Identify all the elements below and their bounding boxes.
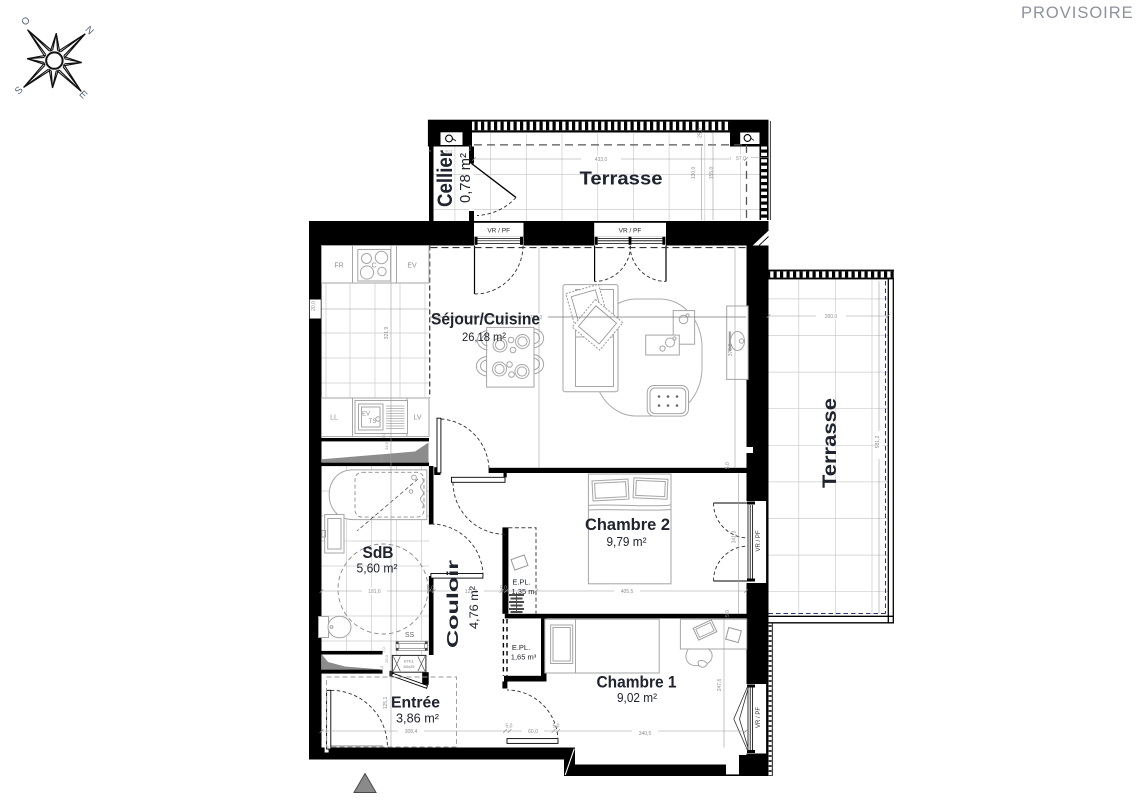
svg-text:3,86 m²: 3,86 m² bbox=[396, 712, 439, 726]
svg-text:25,0: 25,0 bbox=[698, 128, 704, 138]
svg-text:378,8: 378,8 bbox=[728, 344, 734, 357]
svg-text:57,0: 57,0 bbox=[736, 156, 746, 162]
svg-text:VR / PF: VR / PF bbox=[756, 707, 762, 728]
svg-text:Séjour/Cuisine: Séjour/Cuisine bbox=[431, 310, 540, 329]
svg-text:60x25: 60x25 bbox=[404, 664, 416, 669]
svg-text:200,0: 200,0 bbox=[825, 314, 838, 320]
svg-text:1,35 m: 1,35 m bbox=[512, 587, 535, 596]
svg-text:26,18 m²: 26,18 m² bbox=[462, 330, 506, 344]
svg-text:VR / PF: VR / PF bbox=[487, 228, 510, 235]
svg-text:7,0: 7,0 bbox=[379, 665, 384, 671]
svg-text:5,0: 5,0 bbox=[725, 462, 731, 469]
svg-text:5,0: 5,0 bbox=[725, 610, 731, 617]
svg-text:SdB: SdB bbox=[363, 543, 394, 562]
svg-text:7,0: 7,0 bbox=[379, 455, 384, 461]
svg-text:Chambre 1: Chambre 1 bbox=[597, 673, 677, 692]
svg-text:ETEL: ETEL bbox=[404, 659, 415, 664]
svg-text:181,6: 181,6 bbox=[368, 589, 381, 595]
svg-text:SS: SS bbox=[405, 632, 415, 639]
svg-text:VR / PF: VR / PF bbox=[756, 530, 762, 551]
svg-text:6,0: 6,0 bbox=[467, 144, 472, 150]
svg-text:0,78 m²: 0,78 m² bbox=[458, 153, 474, 203]
svg-text:EV: EV bbox=[362, 412, 370, 418]
svg-text:VR / PF: VR / PF bbox=[619, 228, 642, 235]
svg-text:Terrasse: Terrasse bbox=[820, 398, 841, 488]
svg-text:125,1: 125,1 bbox=[383, 697, 389, 710]
svg-text:Couloir: Couloir bbox=[445, 560, 462, 648]
svg-text:PROVISOIRE: PROVISOIRE bbox=[1021, 4, 1134, 22]
svg-text:TS: TS bbox=[369, 419, 377, 425]
svg-text:433,0: 433,0 bbox=[595, 157, 608, 163]
svg-text:Terrasse: Terrasse bbox=[580, 169, 663, 189]
svg-text:LL: LL bbox=[330, 415, 338, 422]
svg-text:25,0: 25,0 bbox=[384, 654, 389, 663]
svg-text:5,0: 5,0 bbox=[506, 724, 513, 730]
svg-text:581,2: 581,2 bbox=[875, 436, 881, 449]
svg-text:60,0: 60,0 bbox=[528, 729, 538, 735]
svg-text:9,79 m²: 9,79 m² bbox=[607, 534, 648, 549]
svg-text:1,65 m³: 1,65 m³ bbox=[511, 653, 537, 662]
svg-text:FR: FR bbox=[334, 263, 343, 270]
svg-text:LV: LV bbox=[413, 415, 421, 422]
svg-text:E.PL.: E.PL. bbox=[512, 643, 530, 652]
svg-text:340,5: 340,5 bbox=[639, 731, 652, 737]
svg-text:321,9: 321,9 bbox=[384, 327, 390, 340]
svg-text:Chambre 2: Chambre 2 bbox=[585, 515, 670, 534]
svg-text:155,0: 155,0 bbox=[709, 167, 715, 180]
svg-text:7,0: 7,0 bbox=[381, 646, 386, 652]
svg-text:5,60 m²: 5,60 m² bbox=[357, 562, 398, 576]
svg-text:Entrée: Entrée bbox=[391, 695, 440, 712]
svg-text:C: C bbox=[371, 263, 376, 270]
svg-text:308,4: 308,4 bbox=[405, 729, 418, 735]
svg-text:9,02 m²: 9,02 m² bbox=[617, 690, 658, 705]
svg-text:5,0: 5,0 bbox=[427, 586, 434, 592]
svg-text:20,0: 20,0 bbox=[311, 301, 317, 311]
svg-text:130,0: 130,0 bbox=[691, 167, 697, 180]
svg-text:5,0: 5,0 bbox=[553, 724, 560, 730]
svg-text:7,0: 7,0 bbox=[381, 432, 386, 438]
svg-text:405,5: 405,5 bbox=[621, 589, 634, 595]
svg-text:4,76 m²: 4,76 m² bbox=[467, 586, 481, 629]
svg-text:34,6: 34,6 bbox=[384, 441, 389, 450]
svg-text:EV: EV bbox=[407, 263, 417, 270]
svg-text:Cellier: Cellier bbox=[434, 150, 457, 207]
svg-text:E.PL.: E.PL. bbox=[512, 578, 530, 587]
svg-text:341,3: 341,3 bbox=[732, 531, 738, 544]
svg-text:247,6: 247,6 bbox=[717, 679, 723, 692]
